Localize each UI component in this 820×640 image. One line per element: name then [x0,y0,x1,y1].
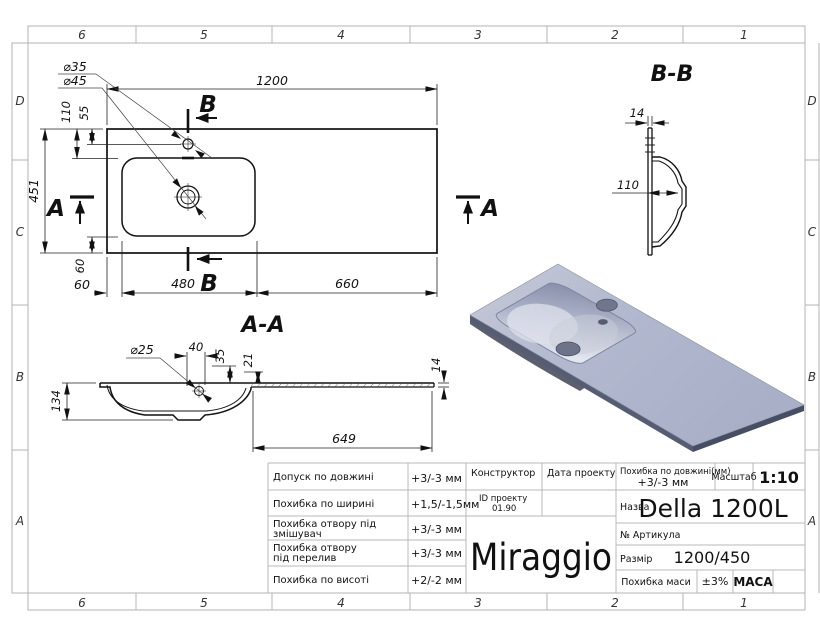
name-value: Della 1200L [638,494,787,523]
callout-d25 [126,358,210,400]
size-value: 1200/450 [674,548,751,567]
frame-col-label: 6 [78,596,86,610]
frame-col-label: 3 [474,596,482,610]
dim-1200-text: 1200 [256,73,288,88]
size-label: Размір [620,554,652,565]
callout-d35-text: ⌀35 [63,59,86,74]
project-id-value: 01.90 [492,504,516,514]
section-marker-b-top: B [188,92,217,133]
callout-d45-text: ⌀45 [63,73,86,88]
plan-view: 1200 451 110 55 60 60 480 [26,59,499,297]
dim-451-text: 451 [26,179,41,203]
section-aa-profile [100,383,434,420]
section-aa-view: A-A ⌀25 40 35 [49,313,449,452]
dim-60v-text: 60 [73,259,87,274]
tolerance-table: Допуск по довжині +3/-3 мм Похибка по ши… [273,471,479,587]
frame-row-label: B [16,370,24,384]
dim-aa-21-text: 21 [241,353,255,368]
drawing-sheet: 6 5 4 3 2 1 6 5 4 3 2 1 D C B A D C B A [0,0,820,640]
mass-tolerance-label: Похибка маси [621,577,691,588]
dim-55-text: 55 [77,106,91,121]
tolerance-value: +3/-3 мм [411,523,462,536]
dim-bb-14-text: 14 [630,106,645,120]
section-aa-slab-hatch [251,383,434,387]
date-label: Дата проекту [547,468,616,479]
section-aa-title: A-A [239,313,284,338]
dim-aa-40 [175,352,217,386]
section-bb-title: B-B [651,62,694,87]
dim-1200 [107,84,437,125]
frame-col-label: 4 [337,28,345,42]
scale-value: 1:10 [759,468,799,487]
tolerance-value: +2/-2 мм [411,574,462,587]
section-marker-a-left: A [45,196,94,224]
titleblock-main: Конструктор Дата проекту ID проекту 01.9… [470,467,799,589]
frame-row-label: B [808,370,816,384]
mass-tolerance-value: ±3% [702,575,729,588]
plan-countertop-outline [107,129,437,253]
tolerance-label: Допуск по довжині [273,471,374,483]
tolerance-label: Похибка по висоті [273,574,369,586]
frame-col-label: 6 [78,28,86,42]
frame-row-label: A [15,514,24,528]
dim-aa-35-text: 35 [213,349,227,364]
section-letter-b: B [199,92,217,118]
dim-60-text: 60 [74,277,90,292]
frame-col-label: 5 [200,28,208,42]
frame-row-label: D [15,94,24,108]
dim-451 [40,129,103,253]
tolerance-label: змішувач [273,528,322,540]
project-id-label: ID проекту [479,494,527,504]
brand-logo: Miraggio [470,536,612,579]
drawing-svg: 6 5 4 3 2 1 6 5 4 3 2 1 D C B A D C B A [0,0,820,640]
frame-col-label: 2 [611,28,619,42]
frame-row-label: D [807,94,816,108]
section-letter-a: A [45,196,65,222]
section-bb-view: B-B 14 110 [612,62,693,255]
frame-col-label: 5 [200,596,208,610]
dim-aa-649-text: 649 [332,431,356,446]
frame-col-label: 3 [474,28,482,42]
tolerance-value: +3/-3 мм [411,547,462,560]
section-letter-b: B [200,271,218,297]
frame-col-label: 1 [740,596,748,610]
dim-110-text: 110 [59,101,73,123]
section-letter-a: A [479,196,499,222]
callout-d25-text: ⌀25 [130,342,153,357]
tolerance-label: Похибка по ширині [273,498,374,510]
dim-aa-14 [438,372,449,398]
dim-aa-35 [212,366,236,383]
frame-col-label: 4 [337,596,345,610]
article-label: № Артикула [620,530,680,541]
tolerance-label: під перелив [273,552,336,564]
frame-row-label: A [807,514,816,528]
mass-label: МАСА [733,575,773,589]
dim-bb-110-text: 110 [617,178,639,192]
dim-aa-14-text: 14 [429,358,443,373]
frame-col-label: 2 [611,596,619,610]
render-3d [470,264,804,452]
frame-row-label: C [16,225,25,239]
section-marker-a-right: A [456,196,499,224]
constructor-label: Конструктор [471,468,535,479]
dim-aa-134-text: 134 [49,390,63,412]
tolerance-value: +1,5/-1,5мм [411,498,479,511]
dim-aa-21 [244,372,263,383]
scale-label: Масштаб [711,472,756,483]
frame-col-label: 1 [740,28,748,42]
length-tolerance-value: +3/-3 мм [638,476,689,489]
dim-480-text: 480 [171,276,195,291]
section-bb-profile [645,128,686,255]
dim-aa-40-text: 40 [189,340,204,354]
dim-660-text: 660 [335,276,359,291]
frame-row-label: C [808,225,817,239]
tolerance-value: +3/-3 мм [411,472,462,485]
